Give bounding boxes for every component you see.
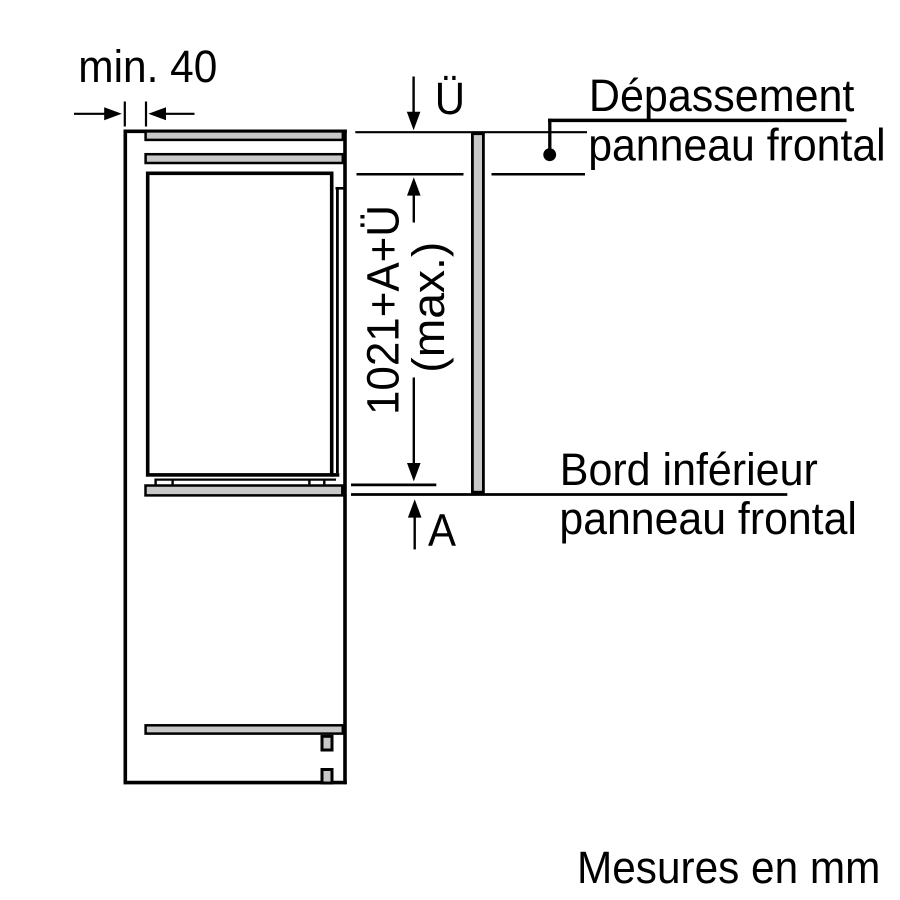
svg-text:1021+A+Ü: 1021+A+Ü — [358, 205, 409, 415]
svg-text:Ü: Ü — [435, 73, 465, 124]
svg-text:A: A — [428, 505, 456, 556]
svg-text:panneau frontal: panneau frontal — [588, 120, 886, 171]
svg-text:Mesures en mm: Mesures en mm — [577, 842, 880, 893]
svg-text:Bord inférieur: Bord inférieur — [560, 444, 818, 495]
svg-text:min. 40: min. 40 — [78, 41, 217, 92]
svg-text:Dépassement: Dépassement — [589, 70, 855, 121]
svg-text:panneau frontal: panneau frontal — [559, 493, 857, 544]
svg-text:(max.): (max.) — [403, 242, 454, 373]
